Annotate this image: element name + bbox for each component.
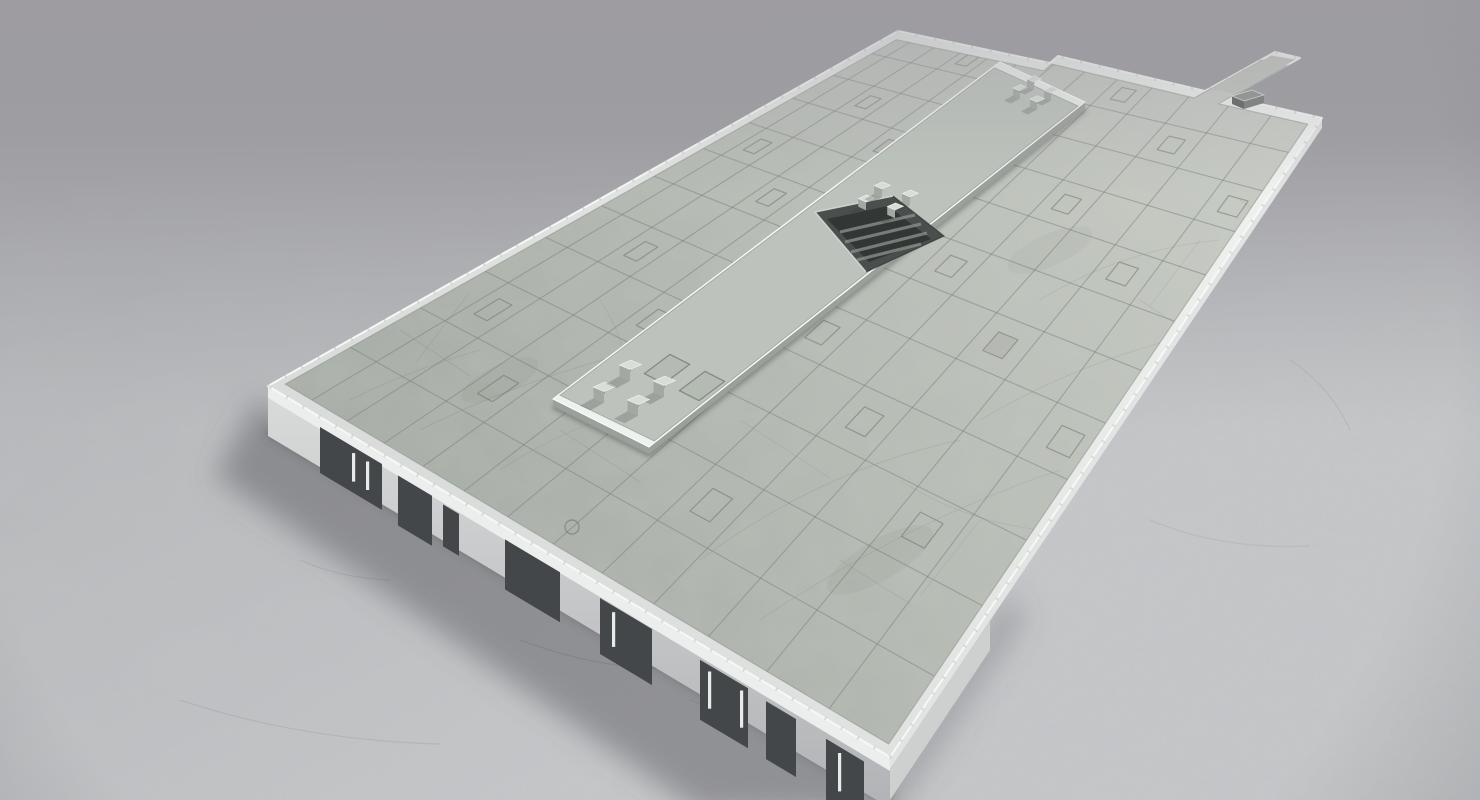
render-viewport — [0, 0, 1480, 800]
facade-door-frame — [838, 753, 841, 791]
fog-overlay — [0, 0, 1480, 195]
scene-canvas — [0, 0, 1480, 800]
facade-door-frame — [612, 612, 615, 647]
facade-door-frame — [352, 453, 355, 482]
facade-door-frame — [740, 691, 743, 728]
facade-door-frame — [708, 672, 711, 709]
facade-door-frame — [366, 462, 369, 491]
